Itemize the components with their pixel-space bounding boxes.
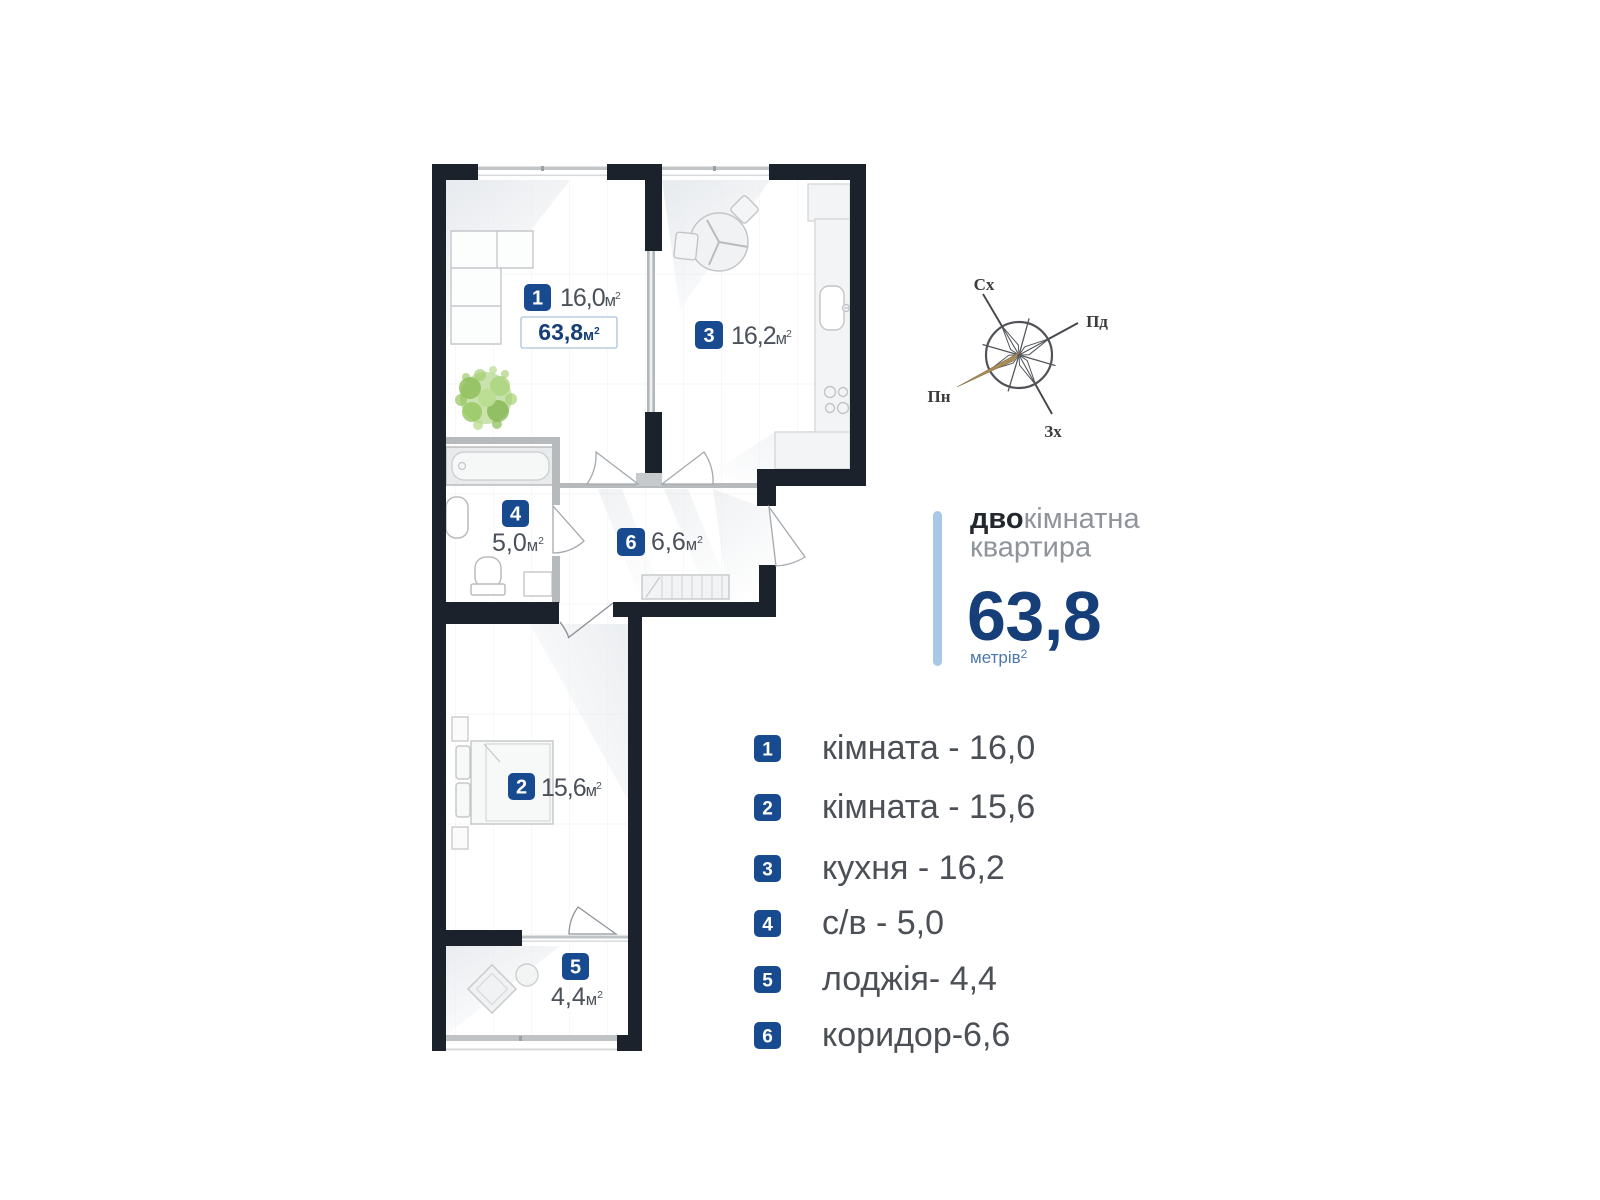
svg-text:1: 1 — [762, 740, 773, 761]
svg-text:2: 2 — [516, 777, 527, 799]
svg-text:4: 4 — [762, 915, 773, 936]
svg-text:5: 5 — [762, 971, 773, 992]
svg-text:Зх: Зх — [1044, 422, 1062, 441]
svg-text:3: 3 — [703, 325, 714, 347]
svg-text:6: 6 — [625, 532, 636, 554]
svg-text:кухня - 16,2: кухня - 16,2 — [822, 849, 1005, 887]
svg-text:Сх: Сх — [974, 275, 995, 294]
svg-text:метрів2: метрів2 — [970, 647, 1028, 667]
svg-text:5: 5 — [570, 957, 581, 979]
svg-text:Пд: Пд — [1086, 312, 1108, 331]
svg-text:2: 2 — [762, 799, 773, 820]
svg-text:Пн: Пн — [927, 387, 950, 406]
svg-text:коридор-6,6: коридор-6,6 — [822, 1016, 1010, 1054]
svg-text:6: 6 — [762, 1027, 773, 1048]
svg-text:кімната - 16,0: кімната - 16,0 — [822, 729, 1035, 767]
svg-text:1: 1 — [532, 288, 543, 310]
svg-text:63,8: 63,8 — [967, 577, 1101, 655]
svg-text:с/в - 5,0: с/в - 5,0 — [822, 904, 944, 942]
svg-text:3: 3 — [762, 860, 773, 881]
svg-text:квартира: квартира — [970, 532, 1092, 564]
svg-text:двокімнатна: двокімнатна — [970, 503, 1140, 535]
svg-text:лоджія- 4,4: лоджія- 4,4 — [822, 960, 997, 998]
svg-text:4: 4 — [510, 504, 522, 526]
svg-text:кімната - 15,6: кімната - 15,6 — [822, 788, 1035, 826]
